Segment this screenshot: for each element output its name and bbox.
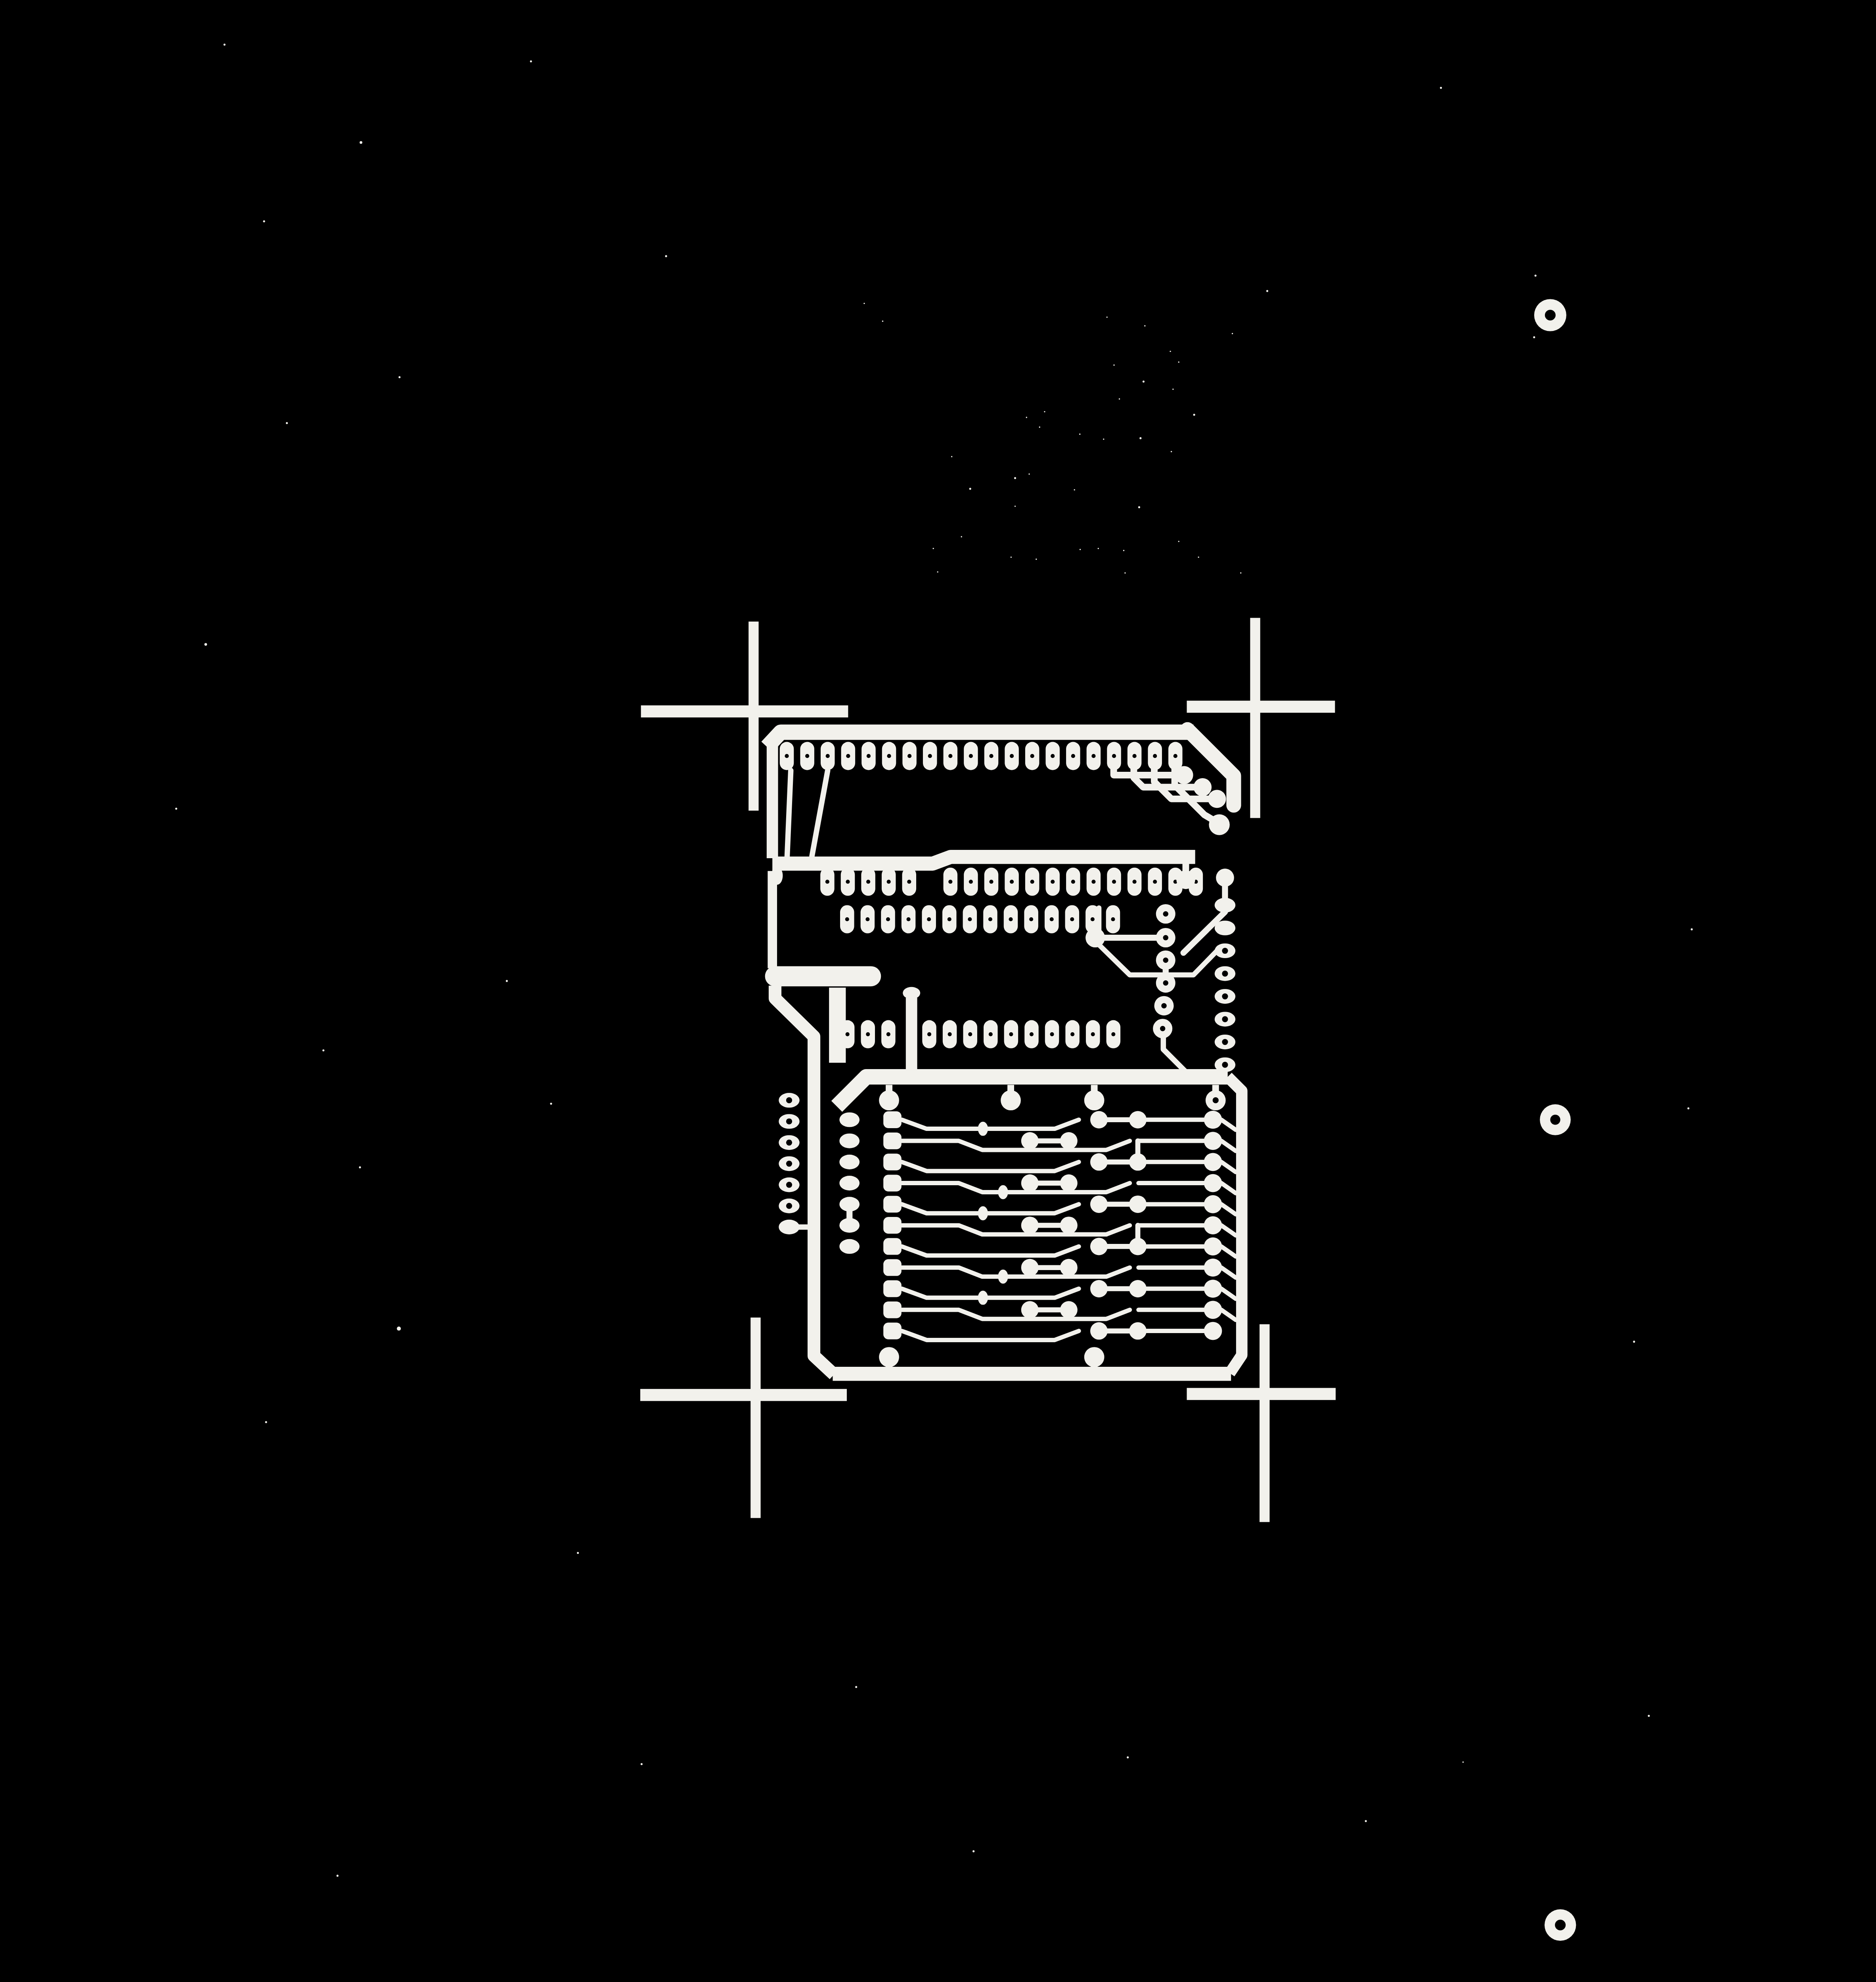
drill-hole [1213, 1097, 1219, 1103]
oval-pad [998, 1270, 1008, 1284]
dip-row-c-left [840, 1020, 896, 1048]
drill-hole [948, 880, 952, 884]
dust-speck [1124, 572, 1126, 574]
drill-hole [1091, 754, 1095, 758]
drill-hole [786, 1140, 792, 1146]
drill-hole [948, 1032, 952, 1036]
drill-hole [1222, 948, 1228, 954]
oval-pad [839, 1133, 860, 1148]
drill-hole [968, 917, 972, 921]
drill-hole [1091, 880, 1095, 884]
round-pad [1216, 869, 1234, 887]
punch-target [1545, 1909, 1576, 1940]
grid-left-pad [883, 1196, 902, 1213]
drill-hole [825, 880, 829, 884]
drill-hole [887, 754, 891, 758]
dust-speck [1079, 434, 1080, 435]
drill-hole [865, 917, 869, 921]
oval-pad [779, 1220, 799, 1234]
dust-speck [641, 1763, 643, 1765]
dust-speck [1171, 451, 1172, 452]
dust-speck [665, 255, 667, 257]
grid-left-pad [883, 1238, 902, 1255]
dust-speck [1143, 381, 1145, 383]
dust-speck [1240, 572, 1241, 574]
cross-horizontal-bar [1187, 701, 1335, 713]
punch-target [1534, 299, 1566, 331]
dust-speck [337, 1875, 339, 1877]
drill-hole [1010, 754, 1014, 758]
drill-hole [1030, 880, 1034, 884]
oval-pad [1215, 898, 1235, 913]
drill-hole [1091, 917, 1095, 921]
dust-speck [1103, 438, 1104, 440]
dust-speck [530, 60, 532, 62]
punch-target [1540, 1104, 1571, 1135]
cross-vertical-bar [748, 622, 758, 811]
dust-speck [932, 548, 934, 549]
round-pad [1084, 1090, 1105, 1110]
trace [772, 857, 1195, 864]
round-pad [1204, 1322, 1222, 1340]
drill-hole [786, 1203, 792, 1209]
dust-speck [359, 1166, 361, 1168]
dust-speck [224, 44, 226, 46]
drill-hole [1163, 957, 1168, 963]
oval-pad [839, 1112, 860, 1127]
drill-hole [1112, 880, 1116, 884]
drill-hole [907, 754, 911, 758]
dust-speck [1015, 505, 1016, 507]
round-pad [1176, 870, 1195, 889]
dust-speck [1113, 364, 1114, 365]
drill-hole [1153, 754, 1157, 758]
dust-speck [398, 376, 400, 378]
drill-hole [786, 1182, 792, 1188]
dust-speck [1139, 437, 1141, 439]
drill-hole [969, 880, 973, 884]
drill-hole [927, 917, 931, 921]
grid-left-pad [883, 1301, 902, 1318]
cross-vertical-bar [750, 1318, 760, 1518]
drill-hole [1545, 310, 1556, 320]
drill-hole [1091, 1032, 1095, 1036]
dust-speck [1440, 87, 1442, 89]
drill-hole [1163, 980, 1168, 986]
grid-left-pad [883, 1112, 902, 1128]
drill-hole [845, 917, 849, 921]
drill-hole [988, 917, 992, 921]
grid-left-pad [883, 1259, 902, 1276]
dust-speck [1178, 362, 1179, 363]
dust-speck [1123, 550, 1124, 551]
dust-speck [1266, 290, 1268, 292]
cross-vertical-bar [1260, 1324, 1269, 1522]
round-pad [879, 1090, 899, 1110]
dust-speck [972, 1850, 974, 1852]
dust-speck [1533, 336, 1535, 338]
drill-hole [989, 1032, 993, 1036]
dust-speck [1687, 1107, 1689, 1109]
dust-speck [1080, 549, 1081, 550]
drill-hole [826, 754, 830, 758]
drill-hole [907, 880, 911, 884]
grid-left-pad [883, 1154, 902, 1170]
drill-hole [866, 880, 870, 884]
oval-pad [978, 1291, 988, 1305]
round-pad [1085, 928, 1105, 947]
drill-hole [1555, 1920, 1566, 1930]
oval-pad [839, 1176, 860, 1190]
drill-hole [1163, 911, 1168, 917]
drill-hole [1163, 935, 1168, 941]
drill-hole [1009, 1032, 1013, 1036]
dust-speck [1648, 1715, 1650, 1717]
drill-hole [1222, 970, 1228, 976]
drill-hole [989, 880, 993, 884]
drill-hole [1030, 754, 1034, 758]
drill-hole [785, 754, 789, 758]
dust-speck [265, 1421, 267, 1423]
dust-speck [1119, 398, 1120, 400]
drill-hole [1111, 917, 1115, 921]
dust-speck [1014, 477, 1016, 479]
film-background [145, 0, 1731, 1982]
drill-hole [1160, 1026, 1166, 1031]
dust-speck [951, 456, 952, 457]
drill-hole [786, 1118, 792, 1124]
dust-speck [1044, 411, 1045, 412]
dust-speck [1011, 557, 1012, 558]
dust-speck [577, 1552, 579, 1554]
drill-hole [1222, 993, 1228, 999]
round-pad [1001, 1090, 1021, 1110]
round-pad [1084, 1347, 1105, 1367]
cross-horizontal-bar [641, 705, 848, 717]
dust-speck [1144, 325, 1145, 326]
grid-left-pad [883, 1280, 902, 1297]
drill-hole [886, 917, 890, 921]
dust-speck [360, 141, 362, 144]
dust-speck [1074, 489, 1075, 490]
dust-speck [1039, 427, 1040, 428]
drill-hole [1153, 880, 1157, 884]
drill-hole [846, 880, 850, 884]
drill-hole [1051, 880, 1055, 884]
dust-speck [1365, 1820, 1367, 1822]
dust-speck [1232, 333, 1233, 334]
drill-hole [1050, 1032, 1054, 1036]
dust-speck [205, 643, 207, 646]
dust-speck [882, 321, 883, 322]
oval-pad [839, 1155, 860, 1169]
dust-speck [1138, 506, 1140, 508]
drill-hole [1071, 754, 1075, 758]
dust-speck [1106, 316, 1108, 318]
drill-hole [846, 754, 850, 758]
grid-left-pad [883, 1133, 902, 1149]
round-pad [1208, 790, 1226, 808]
drill-hole [1222, 1016, 1228, 1022]
drill-hole [1550, 1115, 1560, 1125]
dust-speck [1178, 541, 1179, 542]
cross-horizontal-bar [640, 1389, 847, 1401]
oval-pad [978, 1122, 988, 1136]
drill-hole [948, 917, 951, 921]
drill-hole [1009, 917, 1013, 921]
drill-hole [948, 754, 952, 758]
drill-hole [786, 1161, 792, 1167]
dust-speck [863, 303, 865, 304]
drill-hole [805, 754, 809, 758]
drill-hole [867, 754, 871, 758]
dust-speck [1026, 417, 1027, 418]
dust-speck [961, 536, 962, 537]
dust-speck [1535, 275, 1537, 277]
dust-speck [322, 1049, 324, 1051]
drill-hole [1173, 754, 1177, 758]
oval-pad [978, 1206, 988, 1221]
dust-speck [263, 220, 265, 222]
dust-speck [1036, 559, 1037, 560]
dust-speck [1170, 351, 1171, 352]
drill-hole [1133, 754, 1137, 758]
dust-speck [397, 1327, 401, 1331]
dust-speck [506, 980, 508, 982]
trace [787, 771, 791, 857]
dust-speck [969, 488, 971, 490]
dust-speck [937, 571, 938, 572]
cross-vertical-bar [1250, 618, 1260, 818]
oval-pad [1215, 920, 1235, 935]
drill-hole [1030, 1032, 1034, 1036]
dust-speck [1172, 388, 1173, 390]
dust-speck [550, 1103, 552, 1105]
dust-speck [1198, 557, 1199, 558]
grid-left-pad [883, 1217, 902, 1234]
drill-hole [1071, 880, 1075, 884]
pcb-photomask-artwork [145, 0, 1731, 1982]
drill-hole [989, 754, 993, 758]
grid-left-pad [883, 1175, 902, 1191]
drill-hole [886, 1032, 890, 1036]
dust-speck [1127, 1756, 1129, 1758]
drill-hole [1070, 1032, 1074, 1036]
dust-speck [1028, 473, 1030, 474]
drill-hole [786, 1097, 792, 1103]
oval-pad [903, 987, 920, 999]
drill-hole [846, 1032, 850, 1036]
drill-hole [1050, 917, 1054, 921]
drill-hole [1222, 1062, 1228, 1068]
dust-speck [1193, 414, 1195, 416]
drill-hole [1010, 880, 1014, 884]
drill-hole [968, 1032, 972, 1036]
grid-left-pad [883, 1322, 902, 1339]
drill-hole [1070, 917, 1074, 921]
oval-pad [998, 1185, 1008, 1200]
drill-hole [866, 1032, 870, 1036]
oval-pad [839, 1218, 860, 1233]
dust-speck [1098, 548, 1099, 549]
drill-hole [1051, 754, 1055, 758]
drill-hole [1111, 1032, 1115, 1036]
dust-speck [855, 1686, 857, 1688]
drill-hole [969, 754, 973, 758]
film-base [145, 0, 1731, 1982]
film-negative-stage [0, 0, 1876, 1982]
drill-hole [1161, 1003, 1167, 1008]
round-pad [1175, 766, 1193, 784]
round-pad [879, 1347, 899, 1367]
dust-speck [1633, 1341, 1635, 1343]
drill-hole [928, 754, 932, 758]
drill-hole [906, 917, 910, 921]
drill-hole [1222, 1039, 1228, 1045]
dust-speck [286, 422, 288, 424]
drill-hole [887, 880, 891, 884]
round-pad [1209, 814, 1229, 835]
drill-hole [1112, 754, 1116, 758]
drill-hole [1133, 880, 1137, 884]
drill-hole [927, 1032, 931, 1036]
dust-speck [175, 807, 177, 809]
oval-pad [839, 1239, 860, 1254]
dust-speck [1691, 928, 1693, 930]
drill-hole [1029, 917, 1033, 921]
round-pad [1193, 778, 1212, 796]
dust-speck [1463, 1761, 1464, 1762]
oval-pad [771, 867, 783, 885]
